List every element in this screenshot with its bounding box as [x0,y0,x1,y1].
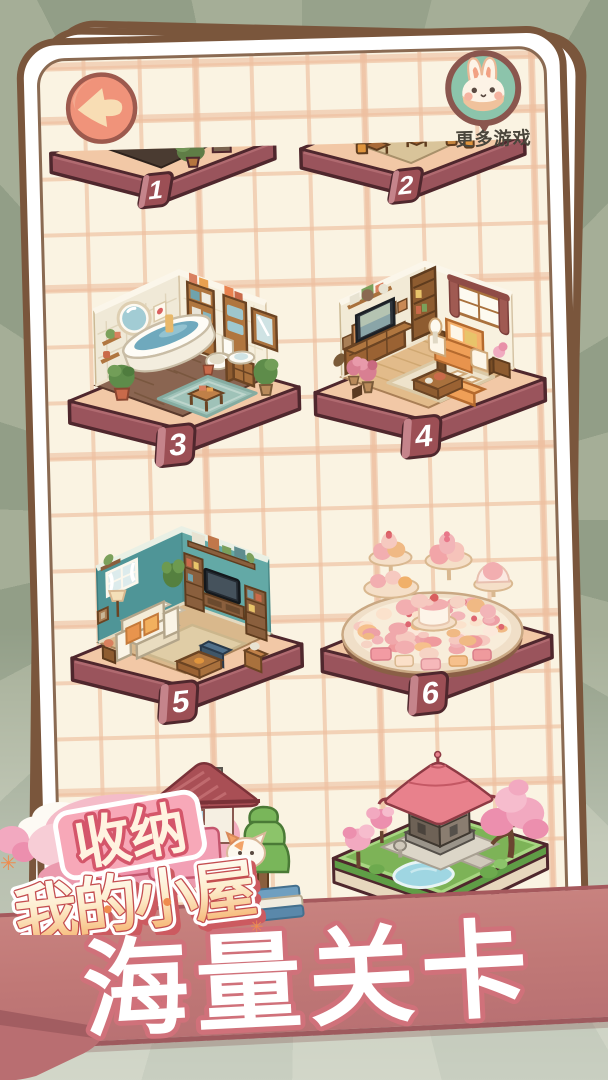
svg-text:5: 5 [171,683,191,720]
svg-text:6: 6 [421,675,441,712]
svg-text:4: 4 [414,418,434,455]
svg-text:✳: ✳ [250,919,263,935]
svg-text:3: 3 [168,426,188,463]
svg-text:✳: ✳ [0,853,17,875]
